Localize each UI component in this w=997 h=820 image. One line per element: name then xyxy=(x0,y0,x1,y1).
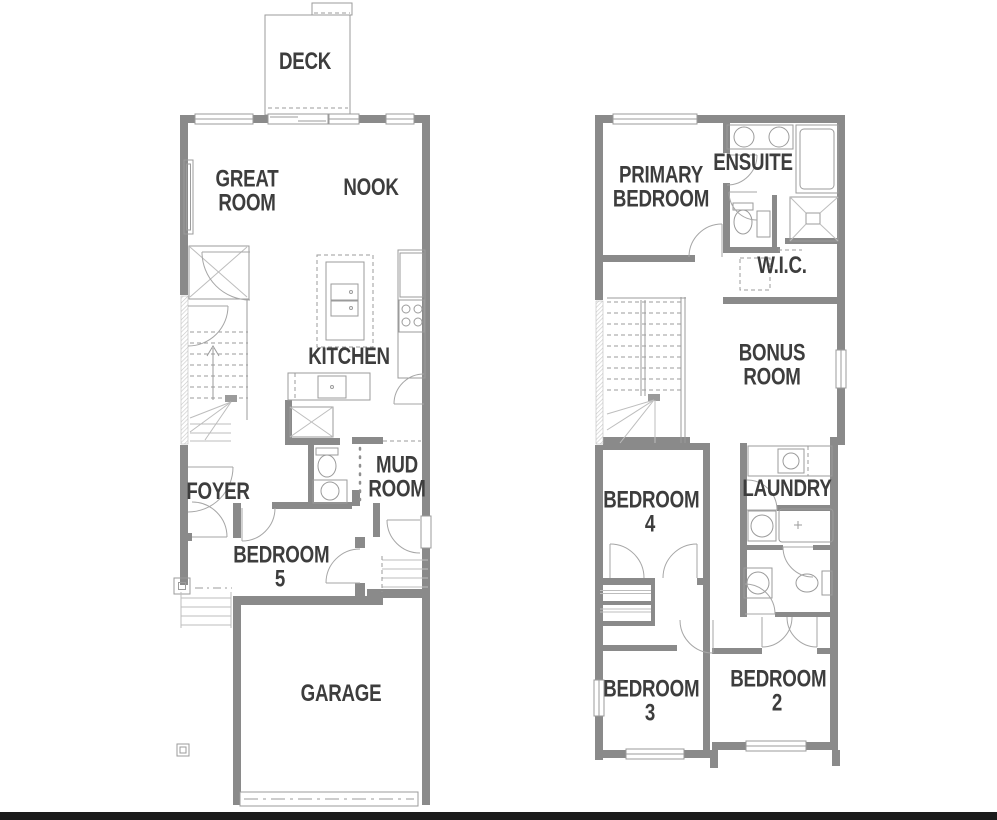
label-bedroom-3: BEDROOM 3 xyxy=(603,677,697,724)
label-garage: GARAGE xyxy=(301,682,382,706)
sink xyxy=(769,127,789,147)
floor-plan-page: DECK GREAT ROOM NOOK KITCHEN MUD ROOM FO… xyxy=(0,0,997,820)
front-porch xyxy=(174,578,232,756)
kitchen-lower-counter xyxy=(288,373,370,400)
sink xyxy=(747,572,769,594)
laundry-fixtures xyxy=(748,446,832,476)
label-ensuite: ENSUITE xyxy=(713,151,792,175)
label-mud-room: MUD ROOM xyxy=(366,453,428,500)
toilet-bowl xyxy=(318,455,336,477)
garage-door xyxy=(240,792,418,806)
cooktop xyxy=(399,300,424,332)
main-bath-fixtures xyxy=(748,509,833,542)
label-great-room: GREAT ROOM xyxy=(210,167,284,214)
second-bath-fixtures xyxy=(744,568,832,598)
kitchen-counter-fridge-stove xyxy=(398,250,425,378)
label-bedroom-4: BEDROOM 4 xyxy=(603,488,697,535)
bathtub xyxy=(779,509,833,542)
label-primary-bedroom: PRIMARY BEDROOM xyxy=(612,163,710,210)
ensuite-fixtures xyxy=(727,125,838,250)
label-kitchen: KITCHEN xyxy=(308,345,390,369)
label-laundry: LAUNDRY xyxy=(742,477,831,501)
laundry-counter xyxy=(748,446,832,476)
dishwasher xyxy=(318,376,346,398)
fridge xyxy=(400,253,423,297)
toilet-tank xyxy=(316,448,338,455)
double-vanity xyxy=(727,125,793,149)
toilet-tank xyxy=(733,203,753,210)
floor-plan-drawing xyxy=(0,0,997,820)
main-door-swings xyxy=(188,252,424,583)
pantry-closet xyxy=(290,407,333,437)
sink xyxy=(734,127,754,147)
bathtub xyxy=(796,125,838,193)
driveway-post xyxy=(177,744,189,756)
label-bedroom-2: BEDROOM 2 xyxy=(730,667,824,714)
kitchen-island xyxy=(317,255,373,347)
upper-stairs xyxy=(595,297,686,445)
footer-bar xyxy=(0,812,997,820)
label-bonus-room: BONUS ROOM xyxy=(733,341,811,388)
label-wic: W.I.C. xyxy=(757,254,807,278)
label-nook: NOOK xyxy=(343,176,398,200)
upper-interior-walls xyxy=(595,123,845,750)
toilet-bowl xyxy=(734,210,752,234)
label-deck: DECK xyxy=(279,50,331,74)
garage-entry-stairs xyxy=(382,556,428,592)
label-foyer: FOYER xyxy=(186,480,249,504)
side-door-opening xyxy=(421,516,431,548)
label-bedroom-5: BEDROOM 5 xyxy=(233,543,327,590)
sink xyxy=(751,515,773,537)
